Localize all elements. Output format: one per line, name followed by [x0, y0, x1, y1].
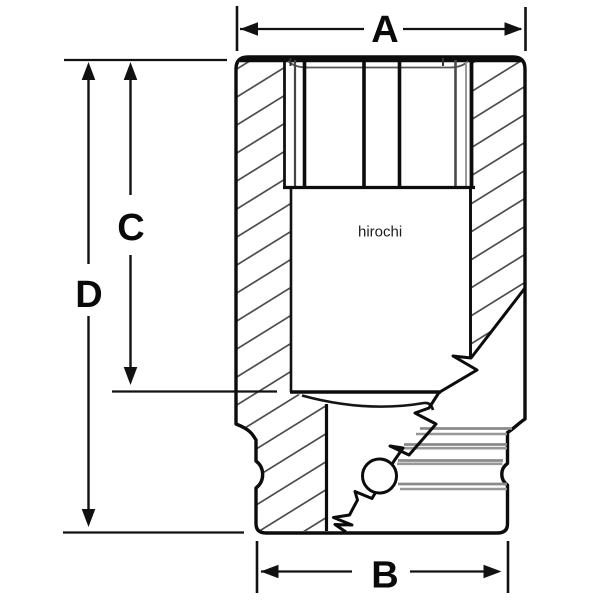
svg-text:D: D: [75, 274, 102, 316]
svg-text:A: A: [371, 9, 398, 51]
svg-text:B: B: [371, 555, 398, 597]
svg-text:hirochi: hirochi: [358, 224, 402, 241]
svg-text:C: C: [117, 207, 144, 249]
